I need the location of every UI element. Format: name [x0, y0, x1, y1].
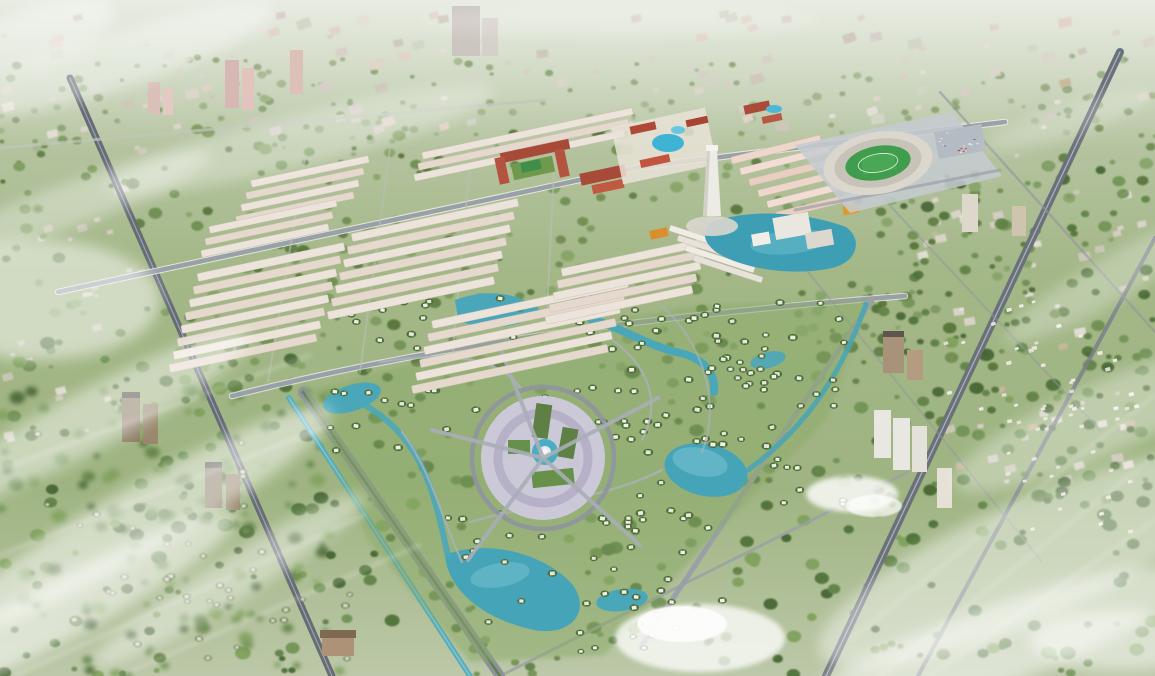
classic-building-roof [320, 630, 356, 638]
pink-tower-1 [225, 60, 239, 108]
pink-tower-3 [290, 50, 303, 94]
cumulus-south-core [637, 606, 727, 642]
tan-tower-east-2 [907, 350, 923, 380]
pink-tower-4 [148, 82, 160, 114]
landmark-tower-crown [706, 145, 718, 151]
white-tower-east-2 [893, 418, 910, 470]
waterpark-lagoon [652, 134, 684, 152]
white-tower-east-3 [912, 426, 927, 472]
pink-tower-5 [163, 88, 173, 115]
plaza-monument [543, 449, 548, 454]
resort-pool [766, 105, 782, 113]
tower-northeast-1 [962, 194, 978, 232]
render-canvas [0, 0, 1155, 676]
wisp-topcenter [420, 2, 820, 38]
white-tower-east-4 [937, 468, 952, 508]
tower-northeast-2 [1012, 206, 1026, 236]
white-tower-east-1 [874, 410, 891, 458]
aerial-masterplan-render [0, 0, 1155, 676]
tan-tower-east-1 [883, 335, 904, 373]
pink-tower-2 [242, 68, 254, 110]
waterpark-pool [671, 126, 685, 134]
puff-east-core [846, 495, 902, 517]
tower-podium [686, 216, 738, 236]
tan-tower-east-1-roof [883, 331, 904, 337]
